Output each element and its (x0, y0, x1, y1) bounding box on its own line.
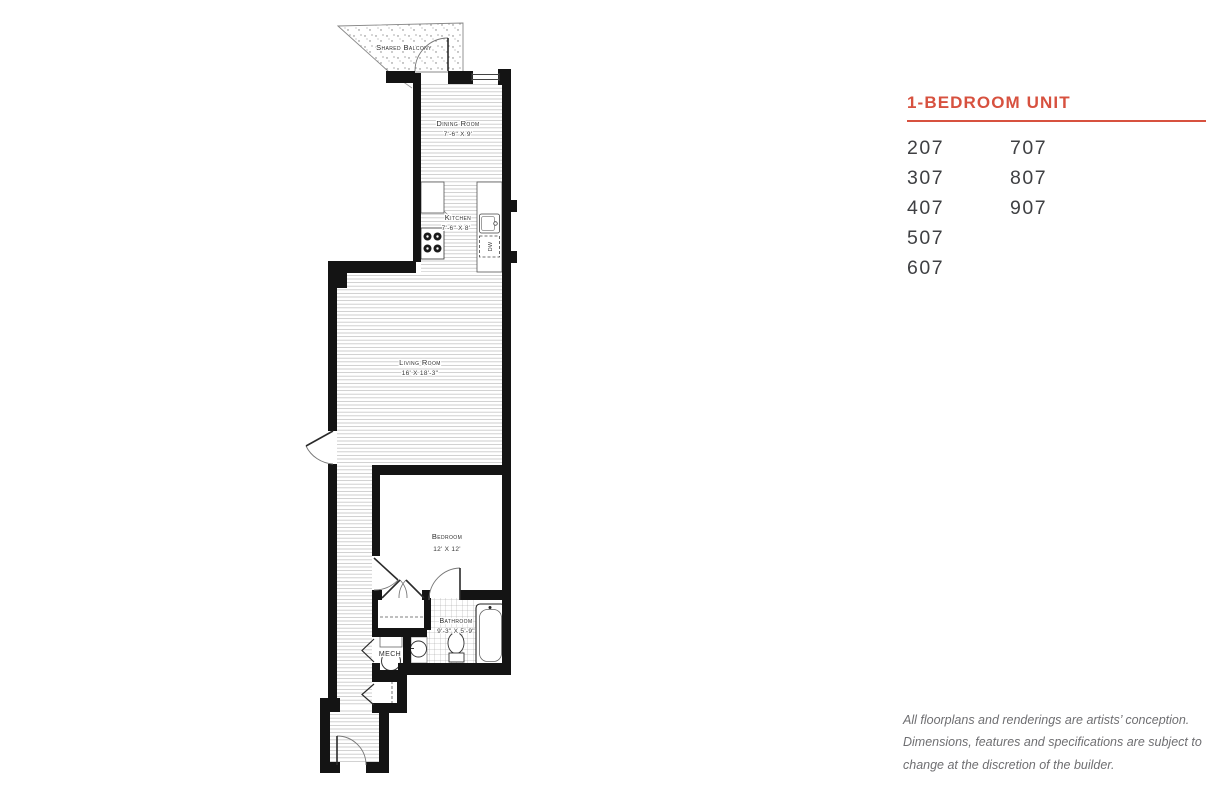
balcony-label: Shared Balcony (376, 43, 432, 52)
stove (421, 228, 444, 259)
kitchen-label: Kitchen (445, 213, 471, 222)
closet-door-leaf-right (406, 580, 424, 598)
unit-number: 807 (1010, 163, 1113, 193)
heading-rule (907, 120, 1206, 122)
bathroom-label: Bathroom (439, 618, 472, 625)
unit-number: 507 (907, 223, 1010, 253)
unit-number: 607 (907, 253, 1010, 283)
disclaimer-line: Dimensions, features and specifications … (903, 731, 1228, 753)
living-door-leaf (306, 431, 333, 446)
unit-number: 707 (1010, 133, 1113, 163)
unit-number: 907 (1010, 193, 1113, 223)
bedroom-closet (378, 598, 425, 628)
dishwasher-label: DW (488, 241, 494, 251)
disclaimer: All floorplans and renderings are artist… (903, 709, 1228, 776)
unit-number: 307 (907, 163, 1010, 193)
bedroom-dims: 12' X 12' (433, 546, 461, 553)
unit-number: 407 (907, 193, 1010, 223)
unit-column-1: 207 307 407 507 607 (907, 133, 1010, 283)
tub-faucet (489, 606, 492, 609)
unit-list: 207 307 407 507 607 707 807 907 (907, 133, 1207, 283)
toilet (448, 633, 464, 654)
mech-label: MECH (379, 651, 401, 658)
unit-number: 207 (907, 133, 1010, 163)
bathroom-dims: 9'-3" X 5'-9" (437, 628, 475, 635)
bedroom-door-leaf (374, 558, 398, 580)
floorplan: Shared Balcony DW (293, 12, 525, 778)
toilet-base (449, 653, 464, 662)
disclaimer-line: change at the discretion of the builder. (903, 754, 1228, 776)
unit-info-panel: 1-BEDROOM UNIT 207 307 407 507 607 707 8… (907, 93, 1207, 283)
bath-door-arc (429, 568, 460, 600)
living-door-arc (306, 446, 333, 464)
kitchen-dims: 7'-6" X 8' (442, 225, 471, 232)
bedroom-label: Bedroom (432, 532, 462, 541)
living-room-label: Living Room (399, 358, 441, 367)
kitchen-faucet (494, 222, 498, 226)
window (472, 73, 499, 81)
brochure-page: { "panel": { "heading": "1-BEDROOM UNIT"… (0, 0, 1228, 794)
disclaimer-line: All floorplans and renderings are artist… (903, 709, 1228, 731)
unit-column-2: 707 807 907 (1010, 133, 1113, 283)
page-title: 1-BEDROOM UNIT (907, 93, 1207, 113)
floorplan-drawing: Shared Balcony DW (293, 12, 525, 778)
kitchen-counter (421, 182, 444, 213)
dining-room-label: Dining Room (436, 119, 479, 128)
dining-room-dims: 7'-6" X 9' (444, 131, 473, 138)
living-room-dims: 16' X 18'-3" (402, 370, 439, 377)
mech-shelf (380, 636, 402, 647)
